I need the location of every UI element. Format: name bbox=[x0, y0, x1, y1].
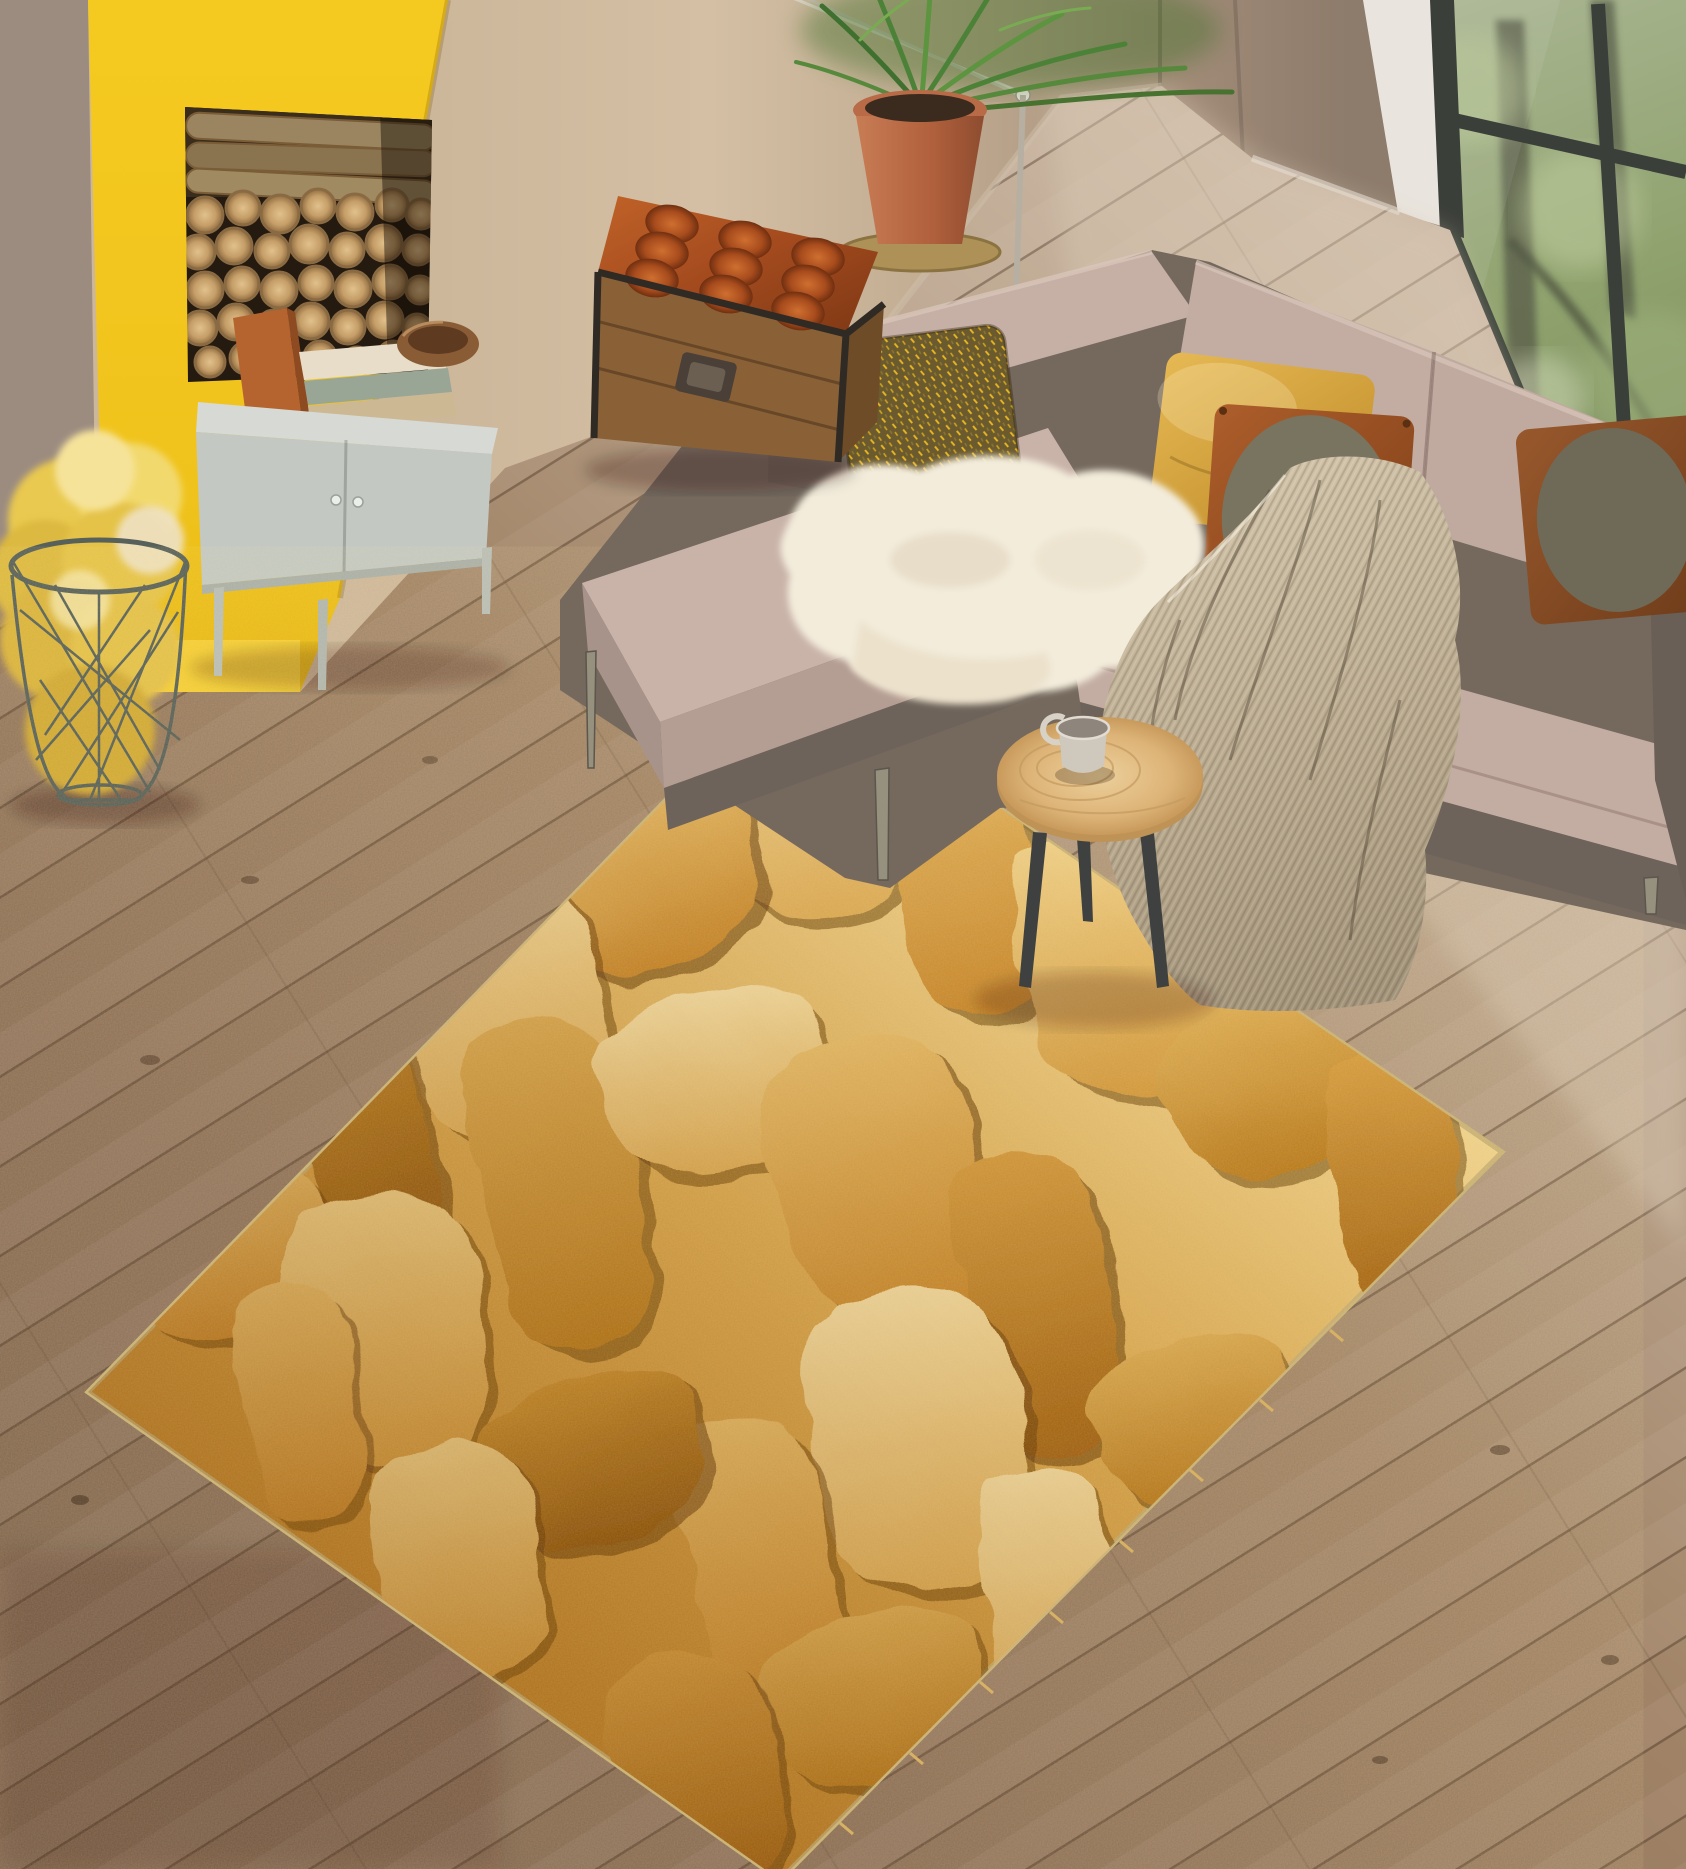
floor-knot bbox=[241, 876, 259, 884]
floor-knot bbox=[1372, 1756, 1388, 1764]
foliage bbox=[1520, 150, 1640, 270]
living-room-scene bbox=[0, 0, 1686, 1869]
floor-knot bbox=[1601, 1655, 1619, 1665]
floor-knot bbox=[140, 1055, 160, 1065]
scene-canvas bbox=[0, 0, 1686, 1869]
pillow-leather-circle-right bbox=[1515, 414, 1686, 625]
cabinet-door-gap bbox=[344, 440, 346, 572]
terracotta-pot bbox=[856, 116, 984, 244]
cabinet-shadow bbox=[190, 646, 510, 690]
cabinet-knob bbox=[353, 497, 363, 507]
wooden-bowl bbox=[397, 321, 479, 367]
floor-knot bbox=[71, 1495, 89, 1505]
pot-soil bbox=[865, 94, 975, 122]
table-shadow bbox=[975, 972, 1215, 1028]
cabinet-knob bbox=[331, 495, 341, 505]
floor-knot bbox=[1490, 1445, 1510, 1455]
floor-knot bbox=[422, 756, 438, 764]
